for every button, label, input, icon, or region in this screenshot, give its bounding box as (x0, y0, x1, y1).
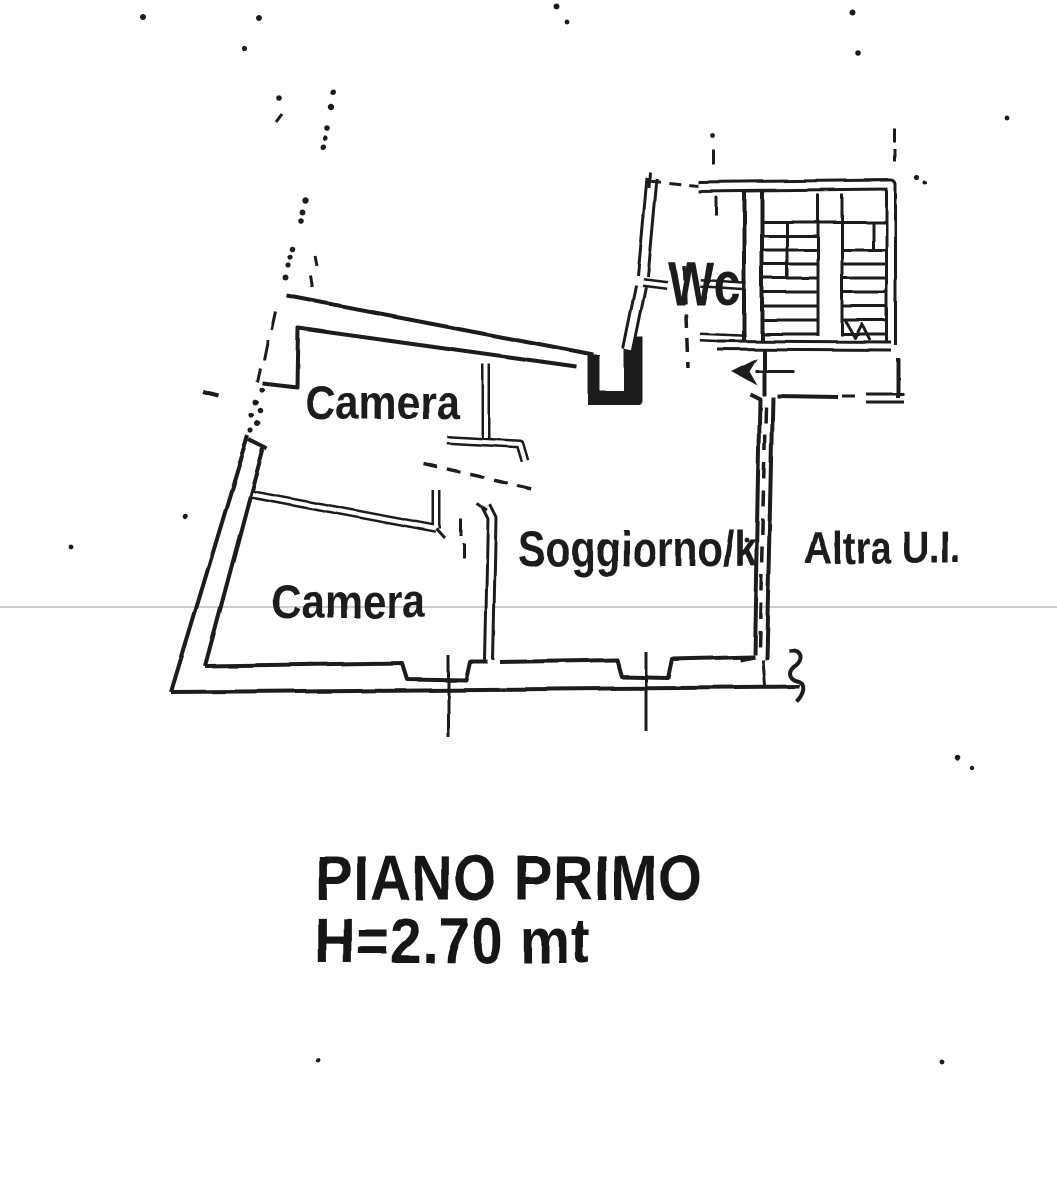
axis-dashes (711, 128, 895, 215)
label-camera-bottom: Camera (271, 574, 427, 628)
door-jamb-dashes (461, 519, 464, 558)
window-centerline-ticks (448, 652, 646, 737)
title-block: PIANO PRIMO H=2.70 mt (315, 842, 703, 977)
wall-end-curl (789, 651, 804, 702)
party-wall-right-face (767, 397, 773, 660)
left-wall-top-stub (249, 440, 267, 449)
label-camera-top: Camera (305, 375, 461, 429)
landing-bottom-wall (777, 396, 838, 397)
stair-break-mark (845, 320, 870, 340)
plan-title: PIANO PRIMO (315, 842, 703, 914)
plan-height-note: H=2.70 mt (315, 905, 591, 977)
stair-stringer (818, 194, 870, 340)
label-soggiorno: Soggiorno/k (518, 521, 758, 577)
survey-tick (203, 392, 219, 396)
inner-bottom-wall-camera-with-window (205, 662, 488, 680)
stair-landing (731, 348, 904, 398)
outer-bottom-wall (171, 687, 800, 692)
floor-plan-drawing: Camera Camera Soggiorno/k Altra U.I. Wc … (0, 0, 1057, 1200)
inner-bottom-wall-soggiorno-with-window (500, 657, 753, 678)
stair-treads (762, 222, 885, 334)
stair-direction-arrow-icon (731, 358, 757, 385)
door-opening-dashed (424, 464, 532, 489)
label-altra-ui: Altra U.I. (804, 522, 961, 573)
scanned-floor-plan-page: Camera Camera Soggiorno/k Altra U.I. Wc … (0, 0, 1057, 1200)
label-wc: Wc (668, 249, 741, 318)
